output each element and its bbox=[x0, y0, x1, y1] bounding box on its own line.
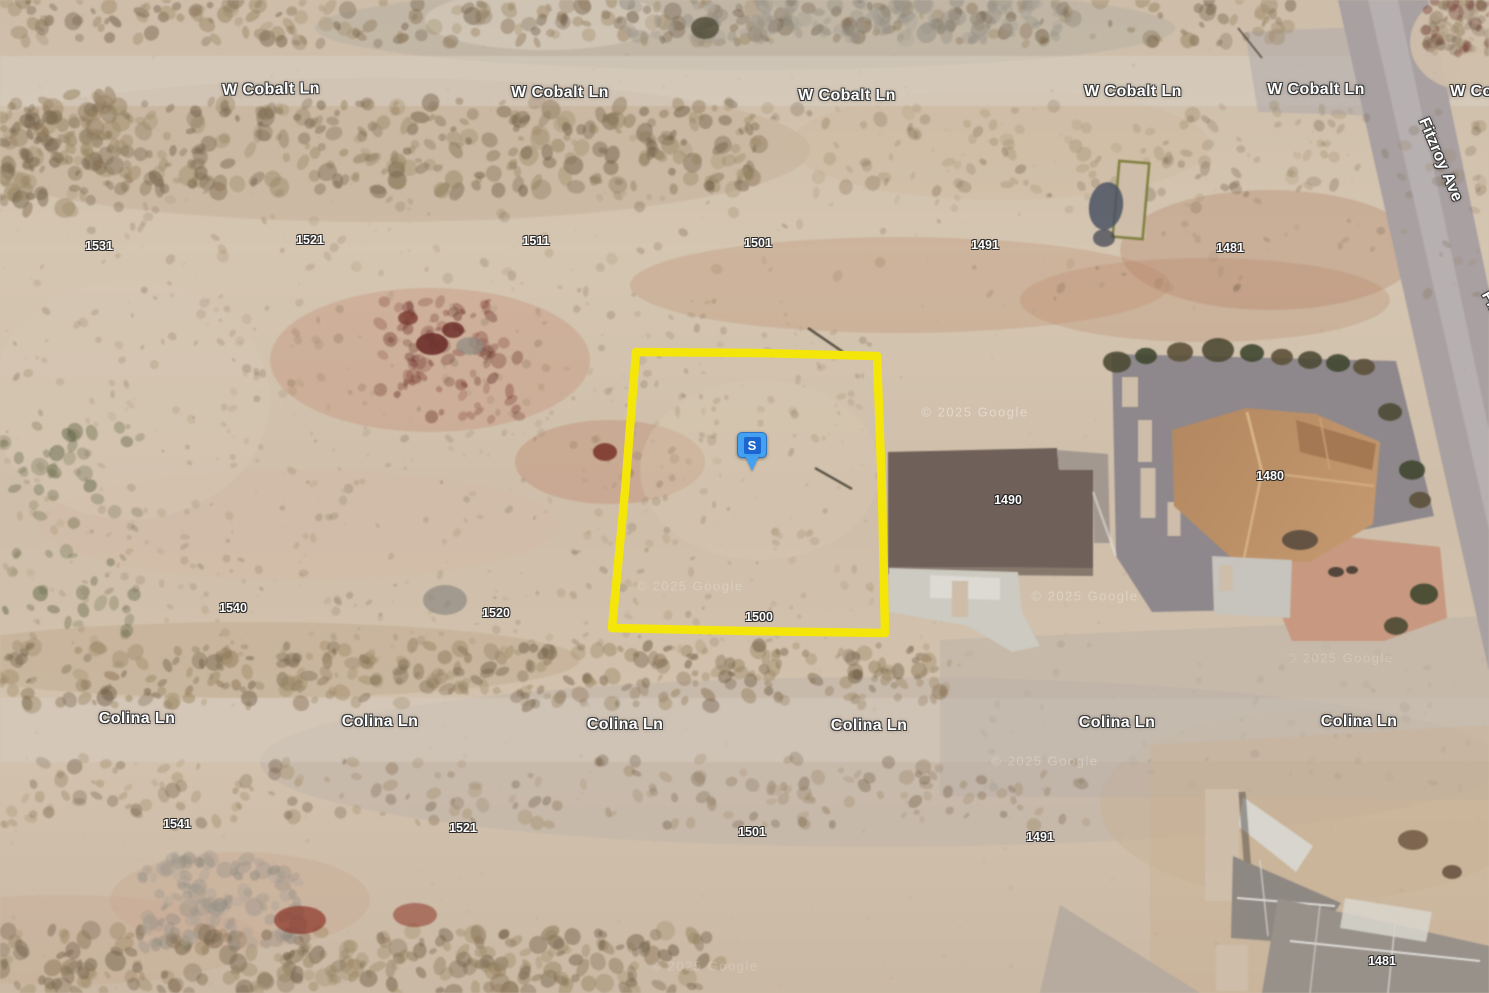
street-label: Colina Ln bbox=[99, 710, 175, 728]
google-watermark: © 2025 Google bbox=[651, 959, 758, 974]
street-label: Colina Ln bbox=[1321, 713, 1397, 731]
street-label: W Cobalt Ln bbox=[798, 87, 896, 105]
satellite-map[interactable]: W Cobalt LnW Cobalt LnW Cobalt LnW Cobal… bbox=[0, 0, 1489, 993]
street-label: Colina Ln bbox=[831, 717, 907, 735]
parcel-number-label: 1491 bbox=[971, 238, 999, 252]
street-label: Colina Ln bbox=[587, 716, 663, 734]
parcel-number-label: 1520 bbox=[482, 606, 510, 620]
marker-pin-tail bbox=[745, 456, 759, 471]
parcel-number-label: 1501 bbox=[744, 236, 772, 250]
parcel-number-label: 1481 bbox=[1368, 954, 1396, 968]
street-label: Fitzroy Ave bbox=[1414, 115, 1466, 204]
parcel-number-label: 1541 bbox=[163, 817, 191, 831]
marker-label: S bbox=[744, 437, 761, 454]
street-label: W Cobalt Ln bbox=[511, 84, 609, 102]
parcel-number-label: 1501 bbox=[738, 825, 766, 839]
parcel-number-label: 1511 bbox=[522, 234, 549, 248]
google-watermark: © 2025 Google bbox=[991, 754, 1098, 769]
google-watermark: © 2025 Google bbox=[1031, 589, 1138, 604]
map-labels: W Cobalt LnW Cobalt LnW Cobalt LnW Cobal… bbox=[0, 0, 1489, 993]
parcel-number-label: 1531 bbox=[85, 239, 113, 253]
parcel-number-label: 1500 bbox=[745, 610, 773, 624]
marker-pin-icon: S bbox=[737, 432, 767, 458]
parcel-number-label: 1480 bbox=[1256, 469, 1284, 483]
parcel-number-label: 1490 bbox=[994, 493, 1022, 507]
street-label: W Cobalt Ln bbox=[1267, 81, 1365, 99]
street-label: Fitzroy Ave bbox=[1477, 288, 1489, 375]
google-watermark: © 2025 Google bbox=[636, 579, 743, 594]
street-label: Colina Ln bbox=[342, 713, 418, 731]
street-label: Colina Ln bbox=[1079, 714, 1155, 732]
google-watermark: © 2025 Google bbox=[1286, 651, 1393, 666]
parcel-number-label: 1491 bbox=[1026, 830, 1054, 844]
street-label: W Cobalt Ln bbox=[222, 80, 320, 100]
map-marker-s[interactable]: S bbox=[736, 432, 768, 476]
parcel-number-label: 1521 bbox=[296, 233, 324, 247]
parcel-number-label: 1481 bbox=[1216, 241, 1244, 255]
google-watermark: © 2025 Google bbox=[921, 405, 1028, 420]
parcel-number-label: 1521 bbox=[449, 821, 477, 835]
street-label: W Cobalt Ln bbox=[1084, 83, 1182, 101]
parcel-number-label: 1540 bbox=[219, 601, 247, 615]
street-label: W Cobalt Ln bbox=[1450, 83, 1489, 101]
